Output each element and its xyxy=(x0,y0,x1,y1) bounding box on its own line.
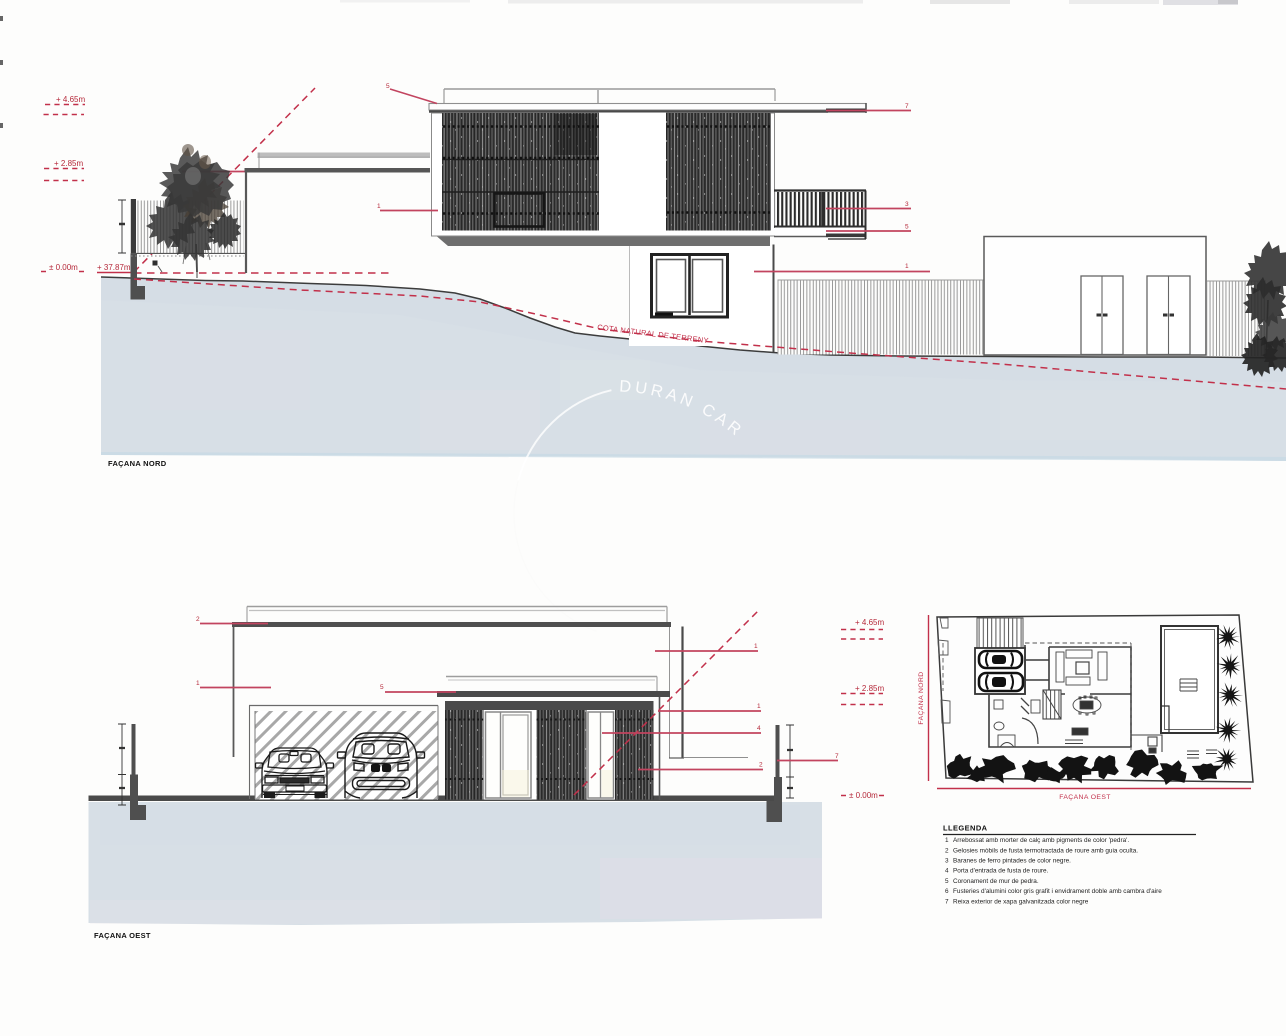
svg-text:1: 1 xyxy=(377,203,381,210)
svg-text:6: 6 xyxy=(945,888,949,895)
svg-text:FAÇANA OEST: FAÇANA OEST xyxy=(94,931,151,940)
svg-text:± 0.00m: ± 0.00m xyxy=(849,791,878,800)
svg-text:5: 5 xyxy=(386,83,390,90)
svg-text:1: 1 xyxy=(757,703,761,710)
svg-text:+ 4.65m: + 4.65m xyxy=(855,618,884,627)
svg-text:+ 4.65m: + 4.65m xyxy=(56,95,85,104)
svg-text:Baranes de ferro pintades de c: Baranes de ferro pintades de color negre… xyxy=(953,858,1071,865)
svg-text:Coronament de mur de pedra.: Coronament de mur de pedra. xyxy=(953,878,1039,885)
svg-text:FAÇANA NORD: FAÇANA NORD xyxy=(918,671,925,724)
svg-text:7: 7 xyxy=(945,898,949,905)
svg-text:7: 7 xyxy=(835,753,839,760)
svg-text:4: 4 xyxy=(945,868,949,875)
svg-text:± 0.00m: ± 0.00m xyxy=(49,263,78,272)
svg-text:Arrebossat amb morter de calç: Arrebossat amb morter de calç amb pigmen… xyxy=(953,837,1129,844)
svg-text:Fusteries d'alumini color gris: Fusteries d'alumini color gris grafit i … xyxy=(953,888,1162,895)
svg-text:Reixa exterior de xapa galvani: Reixa exterior de xapa galvanitzada colo… xyxy=(953,898,1089,905)
svg-text:5: 5 xyxy=(905,224,909,231)
svg-text:1: 1 xyxy=(754,643,758,650)
svg-text:3: 3 xyxy=(905,201,909,208)
svg-text:+ 2.85m: + 2.85m xyxy=(855,684,884,693)
svg-text:1: 1 xyxy=(905,263,909,270)
svg-text:3: 3 xyxy=(945,858,949,865)
svg-text:2: 2 xyxy=(945,847,949,854)
svg-text:+ 2.85m: + 2.85m xyxy=(54,159,83,168)
svg-text:1: 1 xyxy=(945,837,949,844)
svg-text:1: 1 xyxy=(196,680,200,687)
svg-text:5: 5 xyxy=(380,684,384,691)
svg-text:2: 2 xyxy=(759,762,763,769)
svg-text:Porta d'entrada de fusta de ro: Porta d'entrada de fusta de roure. xyxy=(953,868,1049,875)
svg-text:FAÇANA OEST: FAÇANA OEST xyxy=(1059,794,1111,801)
svg-text:LLEGENDA: LLEGENDA xyxy=(943,824,988,833)
svg-text:FAÇANA NORD: FAÇANA NORD xyxy=(108,459,167,468)
svg-text:+ 37.87m: + 37.87m xyxy=(97,263,131,272)
svg-text:2: 2 xyxy=(196,616,200,623)
svg-text:4: 4 xyxy=(757,725,761,732)
svg-text:7: 7 xyxy=(905,103,909,110)
svg-text:5: 5 xyxy=(945,878,949,885)
svg-text:Gelosies mòbils de fusta termo: Gelosies mòbils de fusta termotractada d… xyxy=(953,847,1138,854)
